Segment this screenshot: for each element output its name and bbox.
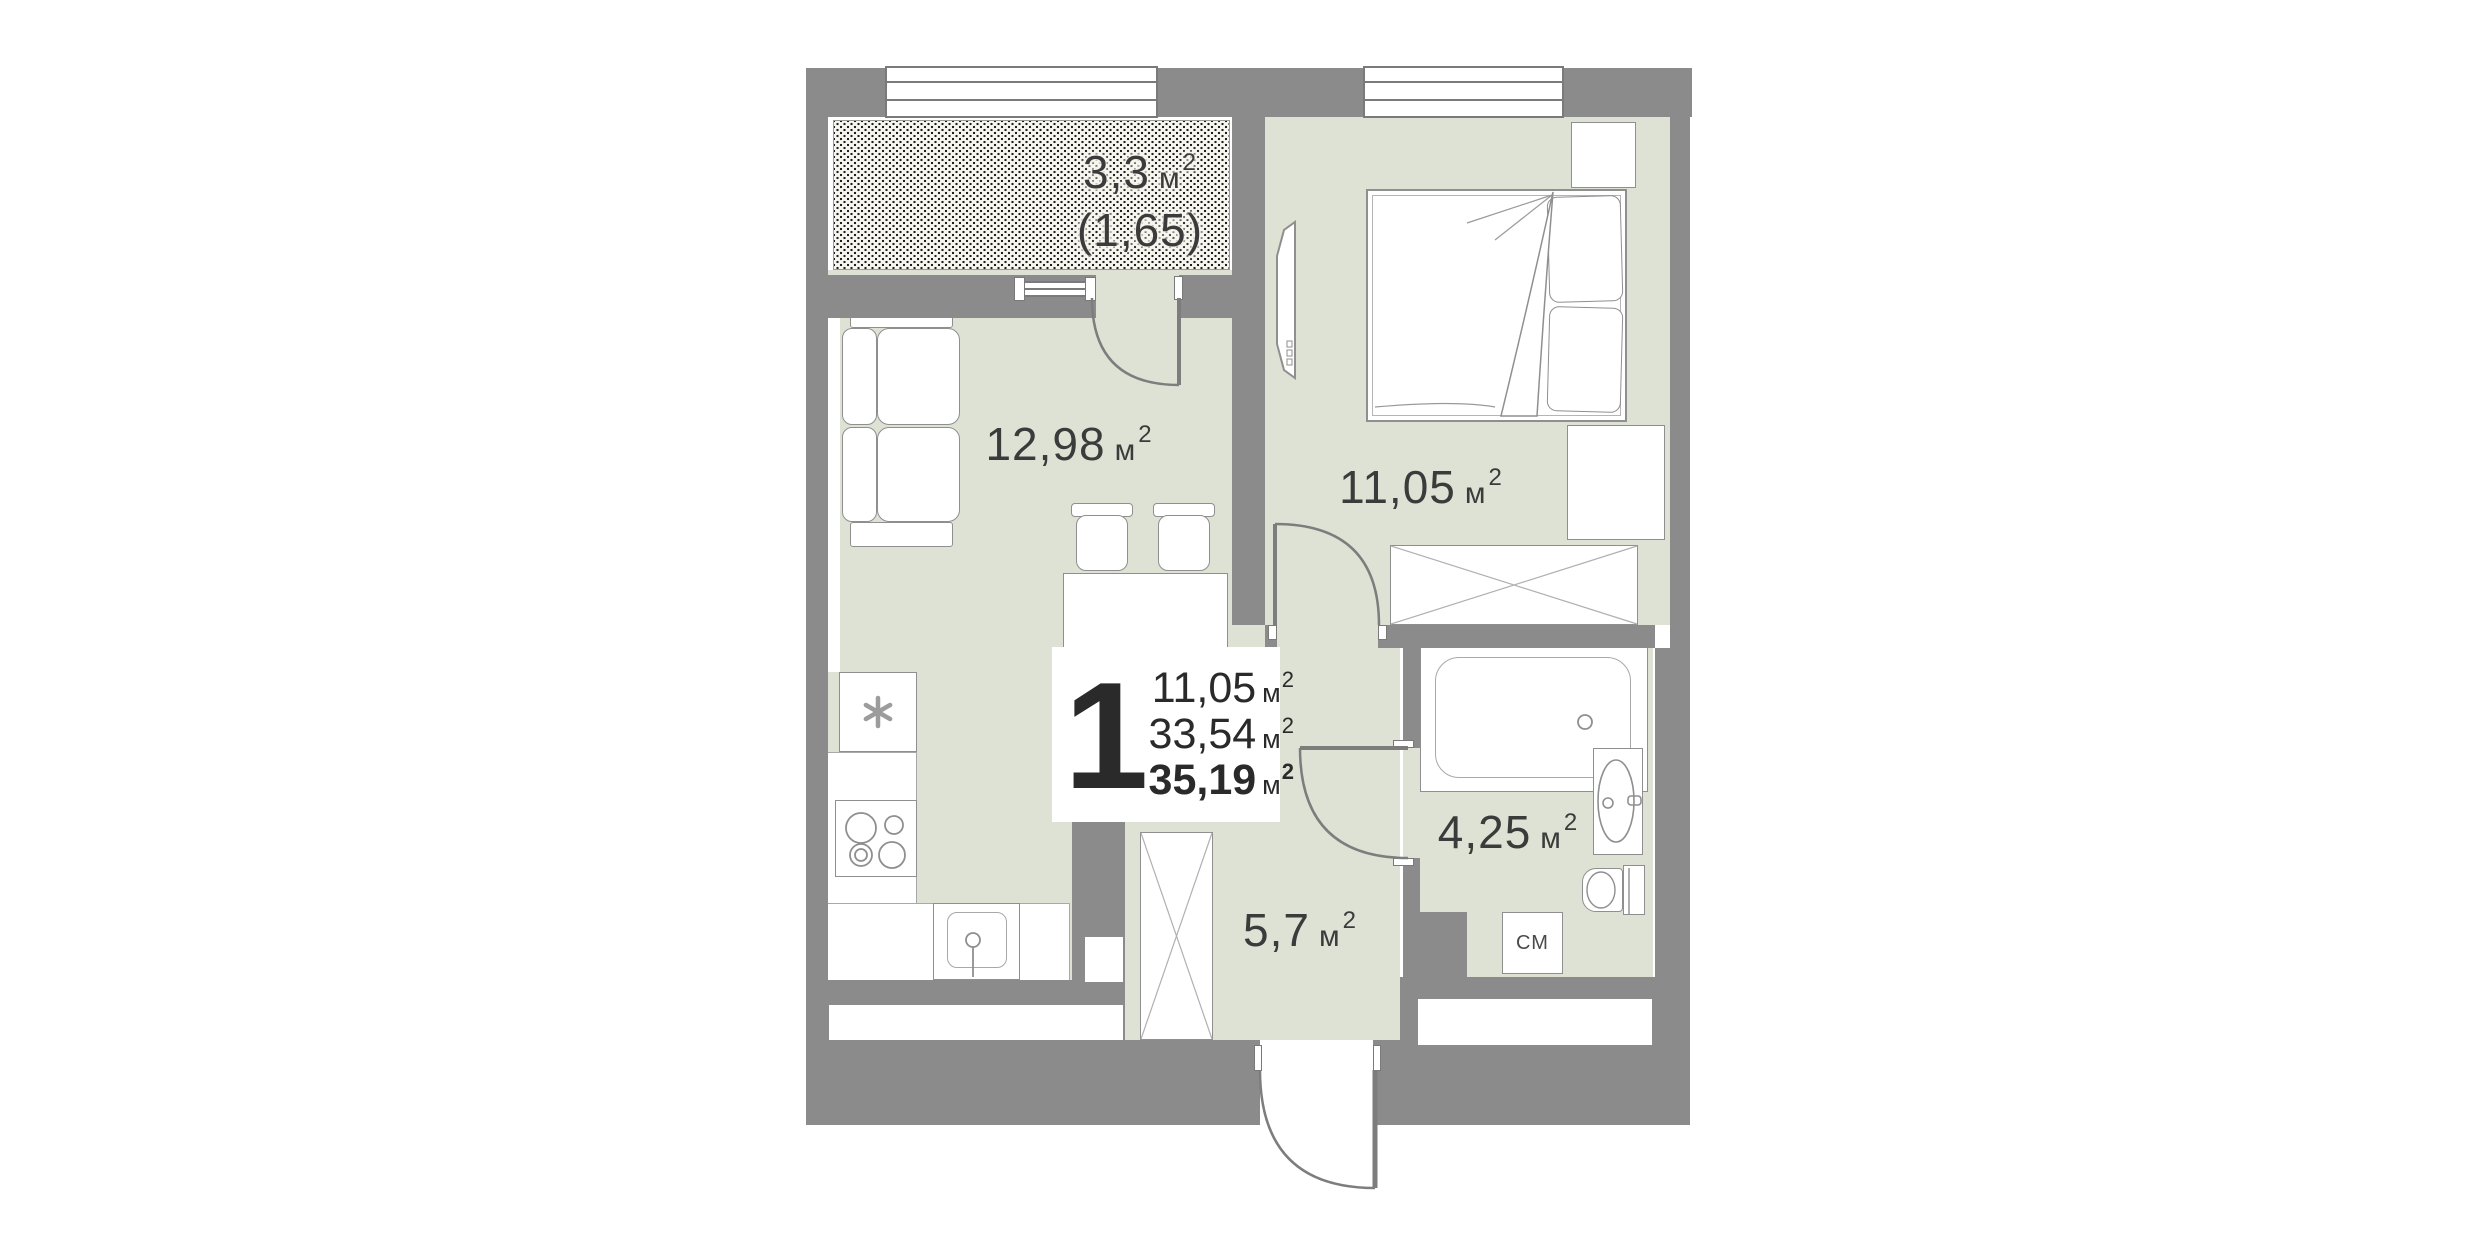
bedroom-area-label: 11,05м2 <box>1339 460 1503 514</box>
unit-areas: 11,05м2 33,54м2 35,19м2 <box>1149 667 1304 802</box>
balcony-window-cap <box>1014 277 1025 301</box>
door-post <box>1393 858 1414 866</box>
sofa-back-cushion <box>842 427 877 522</box>
floor-plan: 3,3м2 (1,65) 12,98м2 11,05м2 4,25м2 5,7м… <box>795 55 1700 1195</box>
fridge <box>839 672 917 752</box>
bathroom-area-label: 4,25м2 <box>1438 805 1579 859</box>
window-living <box>885 66 1158 118</box>
balcony-reduced-label: (1,65) <box>1077 203 1203 257</box>
wall-bath-upper <box>1403 648 1420 748</box>
balcony-area-label: 3,3м2 <box>1083 145 1197 199</box>
door-post <box>1268 625 1277 640</box>
toilet-tank <box>1623 865 1645 915</box>
unit-info-card: 1 11,05м2 33,54м2 35,19м2 <box>1052 647 1280 822</box>
wall-bottom-left <box>806 980 1125 1125</box>
wall-bath-pier <box>1418 912 1467 977</box>
chair-seat <box>1076 515 1128 571</box>
facade-inset <box>829 1005 1123 1040</box>
window-mullion <box>1020 288 1090 290</box>
hallway-area-label: 5,7м2 <box>1243 903 1357 957</box>
pillow <box>1547 306 1624 413</box>
living-area-label: 12,98м2 <box>985 417 1152 471</box>
door-post <box>1373 1045 1381 1071</box>
kitchen-sink-basin <box>947 912 1007 968</box>
nightstand <box>1567 425 1665 540</box>
hallway-wardrobe <box>1140 832 1213 1040</box>
facade-inset <box>1418 999 1652 1045</box>
wall-niche <box>1085 937 1123 982</box>
window-mullion <box>887 81 1156 83</box>
entrance-door-opening <box>1260 1040 1373 1125</box>
window-mullion <box>1365 99 1562 101</box>
bathroom-sink <box>1593 748 1643 855</box>
balcony-area-value: 3,3 <box>1083 146 1150 198</box>
window-mullion <box>1365 81 1562 83</box>
sofa-seat-cushion <box>877 328 960 425</box>
washing-machine-label: СМ <box>1502 912 1563 974</box>
sofa-seat-cushion <box>877 427 960 522</box>
sofa-ledge <box>828 298 840 672</box>
stove <box>835 800 917 877</box>
door-post <box>1393 740 1414 748</box>
sofa-back-cushion <box>842 328 877 425</box>
bedroom-door-opening <box>1277 625 1378 648</box>
area-line-total-with-balcony: 35,19м2 <box>1149 759 1294 802</box>
room-count: 1 <box>1064 671 1149 802</box>
dining-table <box>1063 573 1228 648</box>
balcony-window <box>1018 281 1092 297</box>
wall-bottom-hall <box>1125 1040 1260 1125</box>
chair-seat <box>1158 515 1210 571</box>
door-post <box>1378 625 1387 640</box>
area-line-total: 33,54м2 <box>1149 713 1294 756</box>
pillow <box>1547 195 1624 303</box>
area-line-living: 11,05м2 <box>1152 667 1294 710</box>
wall-living-bedroom <box>1232 68 1265 625</box>
nightstand <box>1571 122 1636 188</box>
window-mullion <box>887 99 1156 101</box>
sofa-armrest-bottom <box>850 522 953 547</box>
window-bedroom <box>1363 66 1564 118</box>
balcony-window-cap <box>1085 277 1096 301</box>
wall-right-bedroom <box>1670 68 1690 648</box>
bathroom-door-opening <box>1403 748 1420 858</box>
door-post <box>1254 1045 1262 1071</box>
wall-left <box>806 68 828 1070</box>
door-post <box>1174 276 1183 300</box>
toilet-bowl <box>1582 868 1623 912</box>
bedroom-wardrobe <box>1390 545 1638 625</box>
balcony-door-opening <box>1096 275 1179 318</box>
